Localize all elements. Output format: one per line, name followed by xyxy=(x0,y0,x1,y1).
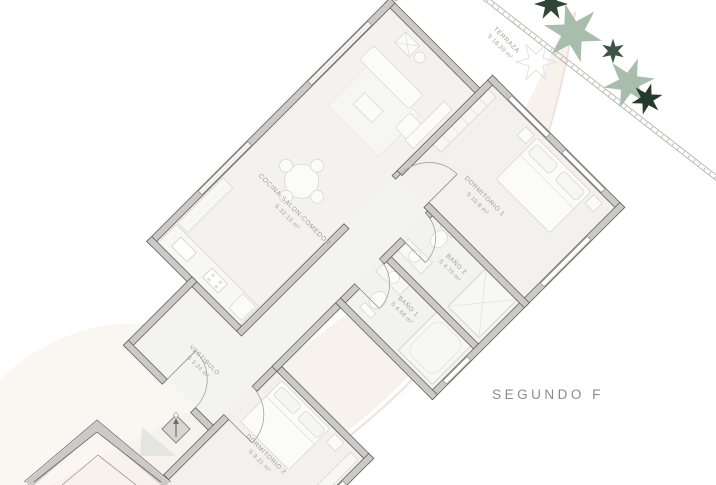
plan-title: SEGUNDO F xyxy=(492,387,604,402)
floor-plan-page: TERRAZA S 18.20 m² COCINA-SALON-COMEDOR … xyxy=(0,0,716,485)
plant-icon xyxy=(534,0,568,19)
north-marker-dot xyxy=(174,413,178,417)
floor-plan-canvas: TERRAZA S 18.20 m² COCINA-SALON-COMEDOR … xyxy=(0,0,716,485)
plant-icon xyxy=(597,35,630,66)
